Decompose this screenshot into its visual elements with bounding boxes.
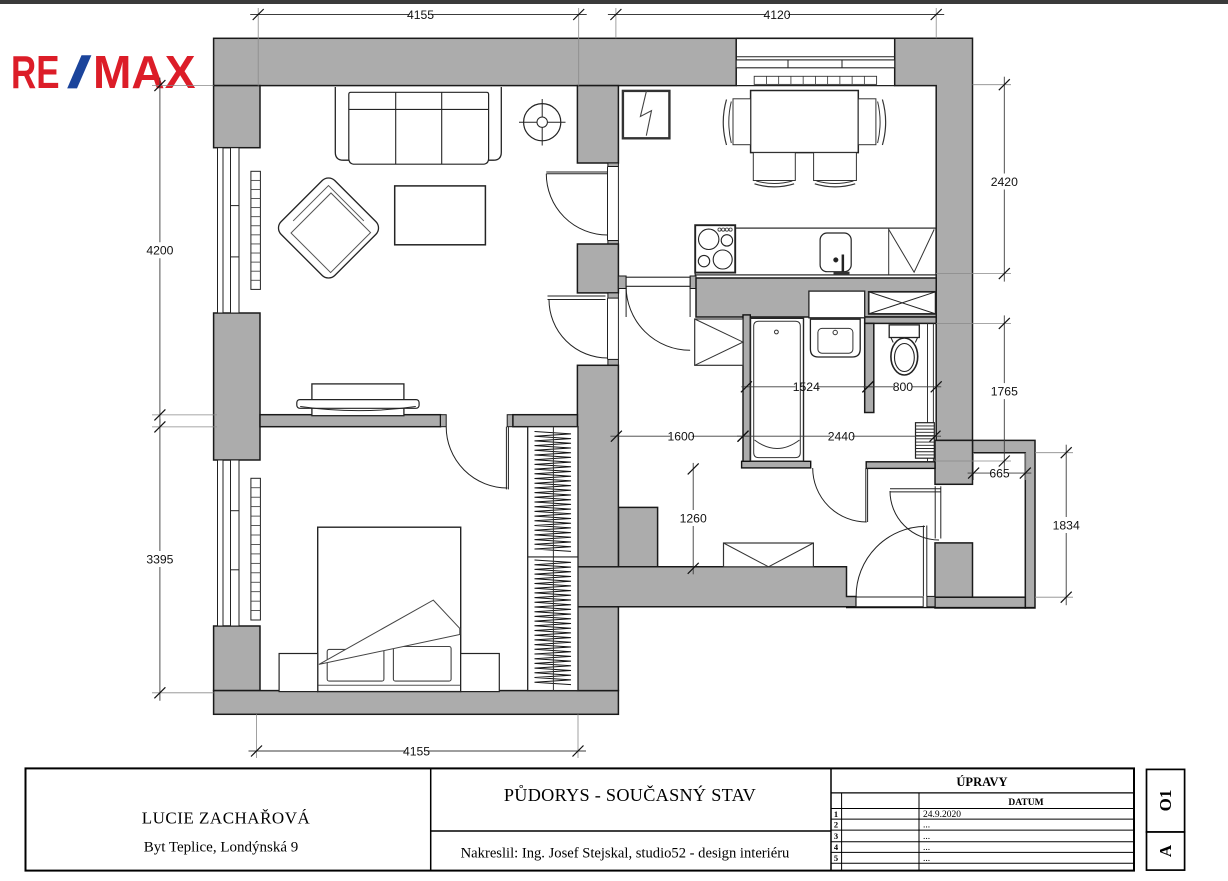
svg-text:1524: 1524 (793, 380, 820, 394)
svg-text:A: A (1156, 844, 1175, 857)
svg-text:...: ... (923, 843, 930, 853)
svg-text:1765: 1765 (991, 384, 1018, 398)
svg-text:MAX: MAX (93, 46, 196, 98)
svg-text:RE: RE (11, 46, 60, 98)
svg-text:ÚPRAVY: ÚPRAVY (956, 775, 1007, 789)
svg-text:PŮDORYS - SOUČASNÝ STAV: PŮDORYS - SOUČASNÝ STAV (504, 784, 756, 805)
svg-text:1: 1 (834, 809, 838, 819)
svg-text:665: 665 (989, 466, 1010, 480)
svg-text:2420: 2420 (991, 175, 1018, 189)
svg-text:4200: 4200 (146, 244, 173, 258)
svg-text:800: 800 (893, 380, 914, 394)
svg-text:...: ... (923, 832, 930, 842)
svg-text:3: 3 (834, 831, 838, 841)
svg-text:2440: 2440 (828, 430, 855, 444)
svg-text:...: ... (923, 854, 930, 864)
svg-text:5: 5 (834, 853, 838, 863)
svg-text:O1: O1 (1156, 790, 1175, 812)
svg-text:2: 2 (834, 820, 838, 830)
svg-text:4155: 4155 (407, 8, 434, 22)
svg-text:Nakreslil: Ing. Josef Stejskal: Nakreslil: Ing. Josef Stejskal, studio52… (461, 846, 790, 862)
svg-text:Byt Teplice, Londýnská 9: Byt Teplice, Londýnská 9 (144, 840, 298, 856)
svg-text:3395: 3395 (146, 552, 173, 566)
svg-text:...: ... (923, 821, 930, 831)
svg-text:24.9.2020: 24.9.2020 (923, 810, 961, 820)
svg-text:1834: 1834 (1053, 518, 1080, 532)
svg-text:1600: 1600 (667, 430, 694, 444)
svg-text:1260: 1260 (680, 511, 707, 525)
svg-text:LUCIE ZACHAŘOVÁ: LUCIE ZACHAŘOVÁ (142, 809, 311, 828)
svg-text:DATUM: DATUM (1008, 798, 1043, 808)
svg-text:4155: 4155 (403, 744, 430, 758)
svg-text:4120: 4120 (763, 8, 790, 22)
